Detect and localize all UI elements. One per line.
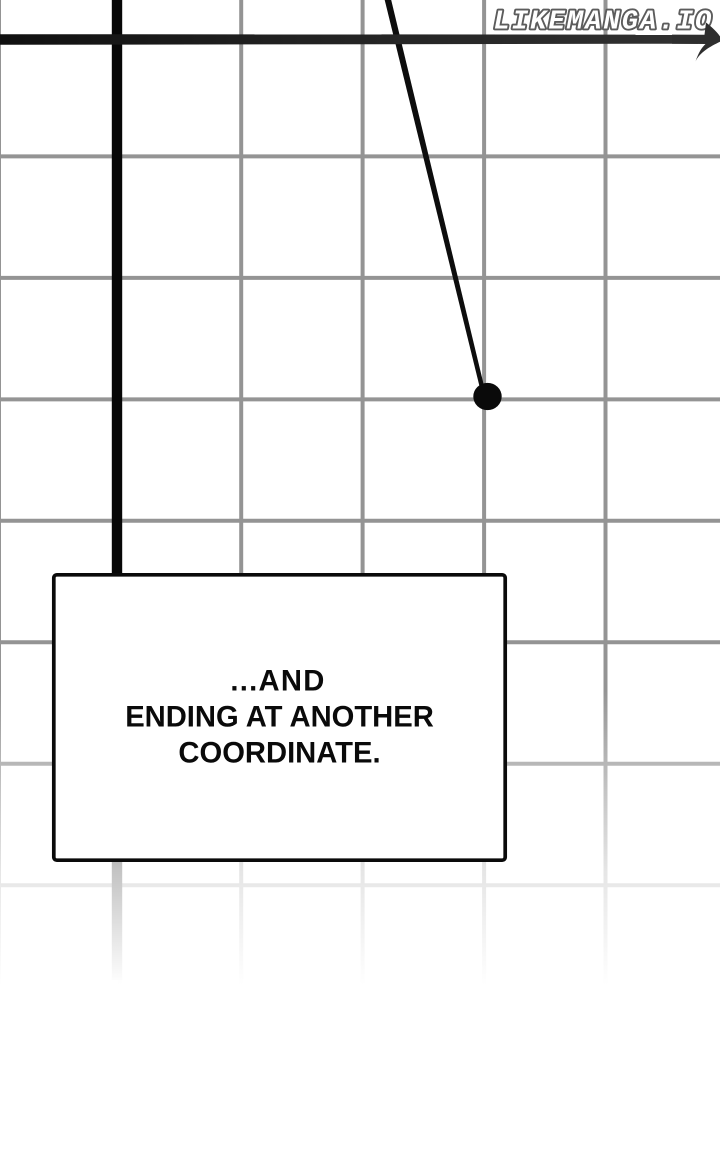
svg-text:COORDINATE.: COORDINATE.	[178, 737, 380, 769]
svg-text:ENDING AT ANOTHER: ENDING AT ANOTHER	[125, 701, 434, 733]
svg-text:LIKEMANGA.IO: LIKEMANGA.IO	[494, 7, 714, 38]
svg-text:...AND: ...AND	[230, 666, 325, 698]
